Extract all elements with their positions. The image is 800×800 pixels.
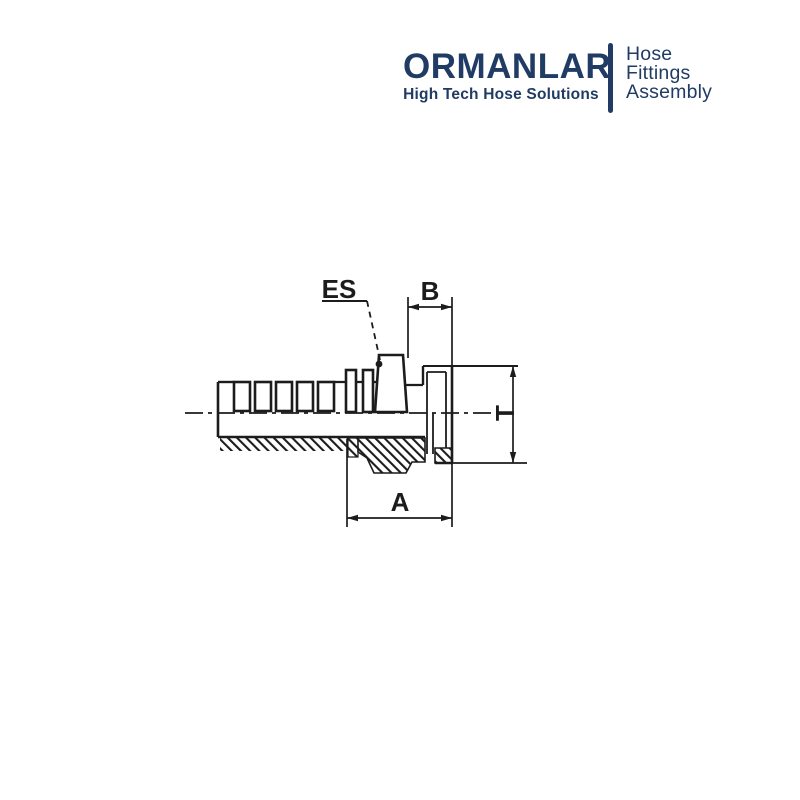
- hose-barbs: [234, 382, 334, 411]
- hex-section-hatch: [358, 438, 425, 473]
- collar-notch-hatch: [348, 438, 358, 457]
- es-label: ES: [322, 274, 357, 304]
- barb: [234, 382, 250, 411]
- barb: [276, 382, 292, 411]
- es-leader-dot: [376, 361, 383, 368]
- thread-section-hatch: [435, 448, 452, 463]
- wall-hatch-strip: [220, 438, 348, 451]
- fitting-technical-drawing: ES B T A: [0, 0, 800, 800]
- t-arrow-top: [510, 366, 516, 377]
- collar-tab: [346, 370, 356, 412]
- a-label: A: [391, 487, 410, 517]
- barb: [318, 382, 334, 411]
- a-arrow-left: [347, 515, 358, 521]
- collar-tab: [363, 370, 373, 412]
- section-hatch: [220, 438, 452, 473]
- barb: [255, 382, 271, 411]
- es-leader-line: [367, 301, 380, 360]
- dimension-t: T: [453, 366, 527, 463]
- dimension-es: ES: [322, 274, 383, 367]
- a-arrow-right: [441, 515, 452, 521]
- b-label: B: [421, 276, 440, 306]
- b-arrow-left: [408, 304, 419, 310]
- barb: [297, 382, 313, 411]
- b-arrow-right: [441, 304, 452, 310]
- t-label: T: [490, 405, 520, 421]
- t-arrow-bottom: [510, 452, 516, 463]
